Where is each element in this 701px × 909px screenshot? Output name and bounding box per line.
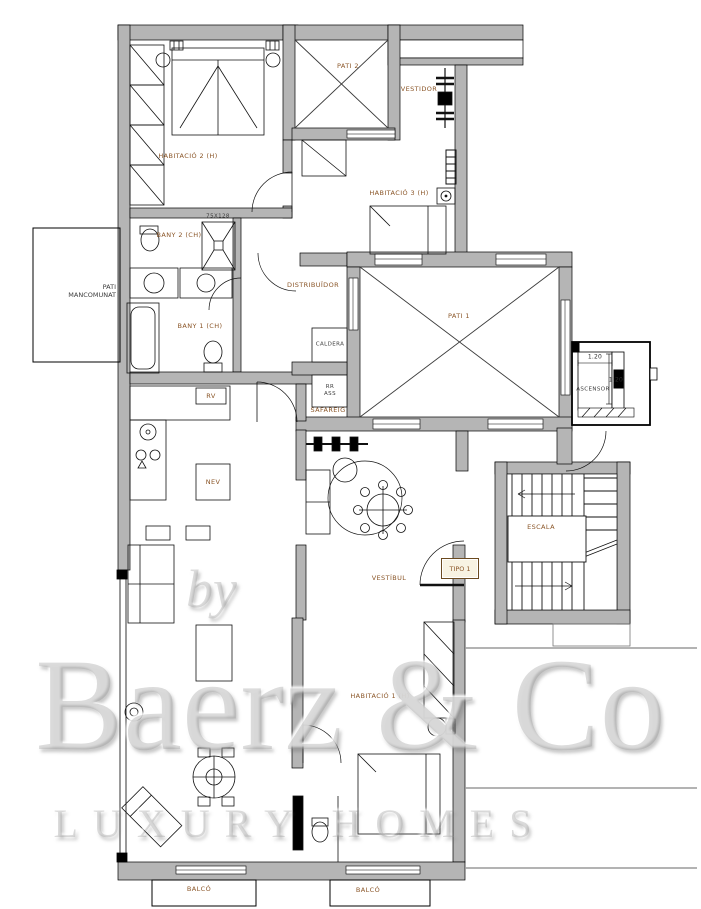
label-habitacio3: HABITACIÓ 3 (H) — [369, 189, 428, 197]
label-safareig: SAFAREIG — [310, 406, 345, 414]
floor-plan-drawing — [0, 0, 701, 909]
label-pati1: PATI 1 — [448, 312, 470, 320]
neighbour-lines — [465, 624, 697, 868]
label-tipo: TIPO 1 — [441, 558, 479, 579]
label-habitacio2: HABITACIÓ 2 (H) — [158, 152, 217, 160]
stairs — [507, 474, 617, 610]
label-rv: RV — [206, 392, 215, 400]
label-pati-mancomunat: PATI MANCOMUNAT — [38, 283, 116, 300]
label-caldera: CALDERA — [316, 342, 345, 349]
label-bany2: BANY 2 (CH) — [157, 231, 202, 239]
label-escala: ESCALA — [527, 523, 555, 531]
label-rr-ass: RR ASS — [324, 384, 336, 398]
label-bany1: BANY 1 (CH) — [178, 322, 223, 330]
label-nev: NEV — [206, 478, 221, 486]
label-elevator-width: 1.20 — [588, 353, 602, 361]
label-distribuidor: DISTRIBUÏDOR — [287, 281, 339, 289]
label-vestidor: VESTIDOR — [401, 85, 437, 93]
label-balco-right: BALCÓ — [356, 886, 380, 894]
furniture-layer — [122, 41, 606, 862]
label-elevator-depth: 1.20 — [609, 376, 623, 384]
label-shower-dim: 75X128 — [206, 214, 230, 221]
label-habitacio1: HABITACIÓ 1 (H) — [350, 692, 409, 700]
label-vestibul: VESTÍBUL — [372, 574, 407, 582]
label-ascensor: ASCENSOR — [576, 387, 610, 394]
label-pati2: PATI 2 — [337, 62, 359, 70]
label-balco-left: BALCÓ — [187, 885, 211, 893]
floor-plan: HABITACIÓ 2 (H) PATI 2 VESTIDOR HABITACI… — [0, 0, 701, 909]
